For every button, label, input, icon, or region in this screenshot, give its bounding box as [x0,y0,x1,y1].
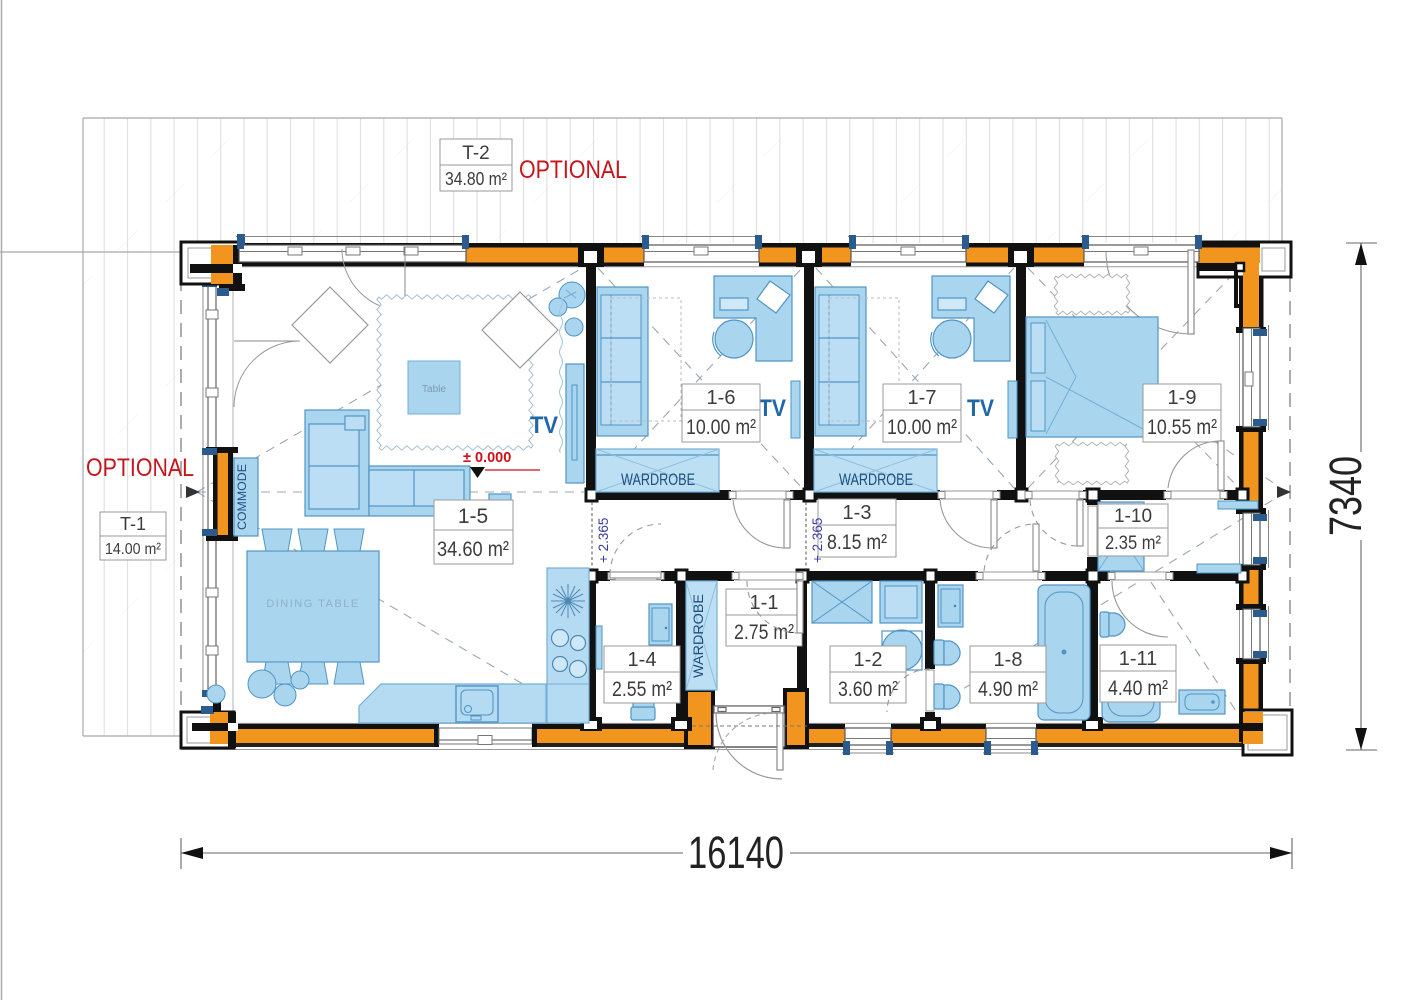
svg-text:Table: Table [422,384,446,395]
svg-text:+ 2.365: + 2.365 [596,518,611,563]
svg-text:2.55 m²: 2.55 m² [612,678,672,701]
svg-text:4.40 m²: 4.40 m² [1108,677,1168,700]
svg-text:± 0.000: ± 0.000 [463,450,511,466]
svg-text:4.90 m²: 4.90 m² [978,678,1038,701]
svg-text:OPTIONAL: OPTIONAL [519,156,627,184]
svg-text:10.55 m²: 10.55 m² [1147,416,1217,439]
svg-text:WARDROBE: WARDROBE [691,594,706,678]
svg-text:1-9: 1-9 [1168,387,1197,409]
svg-text:WARDROBE: WARDROBE [621,471,695,489]
svg-text:1-3: 1-3 [843,502,872,524]
svg-text:1-10: 1-10 [1114,506,1152,527]
svg-text:34.80 m²: 34.80 m² [445,169,507,189]
svg-text:7340: 7340 [1320,456,1371,536]
svg-text:T-1: T-1 [120,514,146,534]
svg-text:3.60 m²: 3.60 m² [838,678,898,701]
svg-text:14.00 m²: 14.00 m² [105,541,162,558]
svg-text:1-8: 1-8 [994,649,1023,671]
svg-text:8.15 m²: 8.15 m² [827,531,887,554]
svg-text:TV: TV [759,395,786,422]
svg-text:1-2: 1-2 [854,649,883,671]
svg-text:DINING TABLE: DINING TABLE [266,598,359,610]
svg-text:WARDROBE: WARDROBE [839,471,913,489]
svg-text:2.35 m²: 2.35 m² [1105,533,1161,554]
svg-text:16140: 16140 [688,827,784,878]
svg-text:1-7: 1-7 [908,387,937,409]
svg-text:TV: TV [530,412,558,439]
svg-text:OPTIONAL: OPTIONAL [86,454,194,482]
svg-text:2.75 m²: 2.75 m² [734,621,794,644]
svg-text:T-2: T-2 [462,143,489,164]
svg-text:10.00 m²: 10.00 m² [887,416,957,439]
svg-text:1-4: 1-4 [628,649,657,671]
svg-text:10.00 m²: 10.00 m² [686,416,756,439]
svg-text:34.60 m²: 34.60 m² [437,538,509,561]
svg-text:1-1: 1-1 [750,592,779,614]
svg-text:COMMODE: COMMODE [237,464,249,530]
svg-text:1-6: 1-6 [707,387,736,409]
svg-text:+ 2.365: + 2.365 [810,518,825,563]
svg-text:1-5: 1-5 [458,505,488,528]
svg-text:1-11: 1-11 [1119,648,1158,670]
svg-text:TV: TV [967,395,994,422]
